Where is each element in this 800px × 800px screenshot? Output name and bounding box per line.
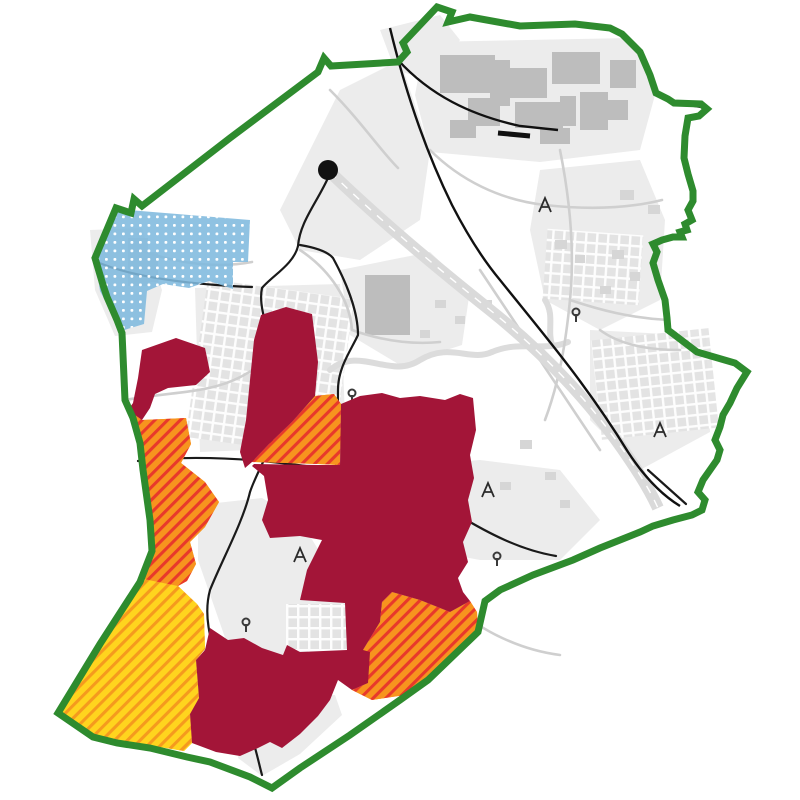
building [612,250,624,259]
building [455,316,465,324]
building [545,472,556,480]
industrial-building [490,60,510,106]
industrial-building [580,92,608,130]
industrial-building [560,96,576,126]
building [620,190,634,200]
building [435,300,446,308]
map-canvas[interactable] [0,0,800,800]
municipal-zoning-map[interactable] [0,0,800,800]
industrial-building [365,275,410,335]
building [630,272,640,281]
building [648,205,660,214]
industrial-building [606,100,628,120]
industrial-building [505,68,547,98]
location-marker-dot [318,160,338,180]
rail-platform [498,133,530,136]
grid-peninsula [286,604,348,652]
building [420,330,430,338]
industrial-building [610,60,636,88]
building [600,286,611,294]
building [500,482,511,490]
industrial-building [552,52,600,84]
building [560,500,570,508]
industrial-building [450,120,476,138]
building [555,240,567,249]
building [575,255,585,263]
industrial-building [515,102,563,128]
industrial-building [440,55,495,93]
zone-yellow-hatched-hatch [61,578,205,751]
building [520,440,532,449]
